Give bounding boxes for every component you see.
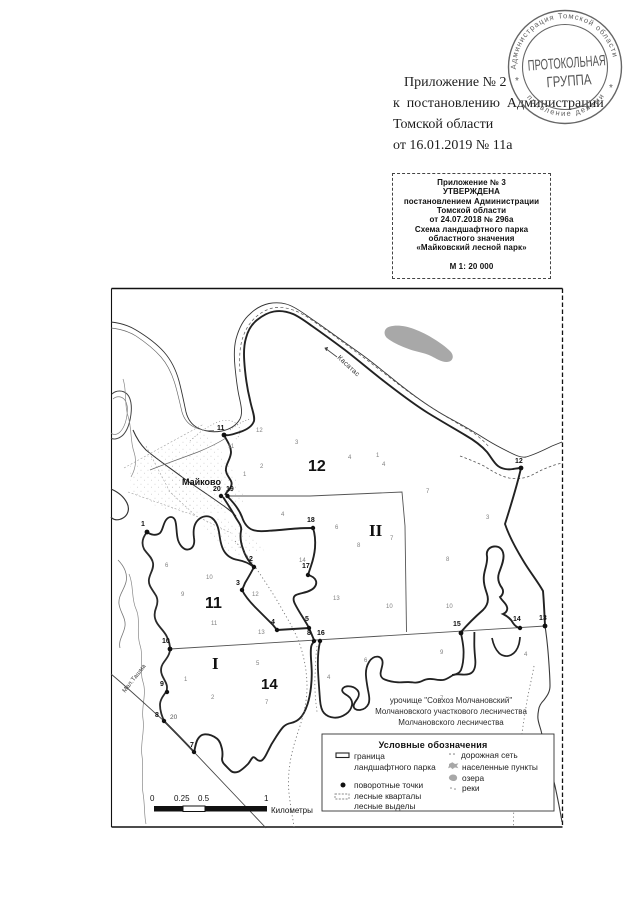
svg-text:граница: граница	[354, 751, 385, 761]
svg-text:14: 14	[261, 676, 278, 693]
svg-text:4: 4	[382, 462, 386, 468]
svg-text:1: 1	[376, 453, 380, 459]
svg-text:4: 4	[281, 512, 285, 518]
svg-text:4: 4	[524, 652, 528, 658]
svg-text:ландшафтного парка: ландшафтного парка	[354, 762, 436, 772]
svg-text:*: *	[609, 83, 613, 94]
svg-text:дорожная сеть: дорожная сеть	[461, 750, 518, 760]
svg-text:11: 11	[205, 595, 222, 612]
svg-text:*: *	[515, 76, 519, 87]
svg-text:5: 5	[305, 616, 309, 623]
svg-text:12: 12	[308, 458, 326, 475]
svg-text:19: 19	[226, 486, 234, 493]
svg-text:15: 15	[453, 621, 461, 628]
svg-text:1: 1	[184, 677, 188, 683]
svg-text:13: 13	[258, 630, 265, 636]
svg-text:11: 11	[211, 621, 218, 627]
svg-text:10: 10	[162, 638, 170, 645]
svg-text:Молчановского лесничества: Молчановского лесничества	[398, 718, 504, 727]
svg-text:1: 1	[264, 794, 269, 803]
svg-text:11: 11	[228, 444, 235, 450]
svg-text:8: 8	[155, 712, 159, 719]
svg-text:20: 20	[170, 714, 178, 721]
svg-text:14: 14	[299, 558, 306, 564]
svg-text:17: 17	[302, 563, 310, 570]
svg-text:реки: реки	[462, 783, 480, 793]
svg-text:1: 1	[243, 472, 247, 478]
svg-text:населенные пункты: населенные пункты	[462, 762, 538, 772]
svg-text:11: 11	[217, 425, 225, 432]
svg-text:ПРОТОКОЛЬНАЯ: ПРОТОКОЛЬНАЯ	[527, 52, 606, 74]
svg-text:0.25: 0.25	[174, 794, 190, 803]
svg-text:3: 3	[236, 580, 240, 587]
svg-text:4: 4	[348, 455, 352, 461]
svg-text:18: 18	[307, 517, 315, 524]
svg-text:9: 9	[160, 681, 164, 688]
svg-text:8: 8	[446, 557, 450, 563]
svg-text:9: 9	[440, 650, 444, 656]
svg-text:0: 0	[150, 794, 155, 803]
svg-text:6: 6	[335, 525, 339, 531]
svg-text:3: 3	[295, 440, 299, 446]
svg-text:10: 10	[206, 575, 213, 581]
svg-text:5: 5	[256, 661, 260, 667]
svg-text:ГРУППА: ГРУППА	[546, 71, 592, 91]
svg-text:9: 9	[181, 592, 185, 598]
svg-text:7: 7	[390, 536, 394, 542]
svg-text:12: 12	[252, 592, 259, 598]
svg-text:3: 3	[486, 515, 490, 521]
svg-text:10: 10	[446, 604, 453, 610]
svg-text:13: 13	[539, 615, 547, 622]
svg-text:7: 7	[426, 489, 430, 495]
svg-text:1: 1	[141, 521, 145, 528]
svg-text:4: 4	[271, 619, 275, 626]
svg-text:лесные выделы: лесные выделы	[354, 801, 415, 811]
svg-text:13: 13	[333, 596, 340, 602]
svg-text:озера: озера	[462, 773, 484, 783]
svg-text:I: I	[212, 654, 219, 673]
svg-text:2: 2	[249, 556, 253, 563]
svg-text:10: 10	[386, 604, 393, 610]
svg-text:14: 14	[513, 616, 521, 623]
svg-text:урочище "Совхоз Молчановский": урочище "Совхоз Молчановский"	[390, 696, 513, 705]
svg-text:Молчановского участкового лесн: Молчановского участкового лесничества	[375, 707, 527, 716]
svg-text:0.5: 0.5	[198, 794, 210, 803]
svg-text:лесные кварталы: лесные кварталы	[354, 791, 421, 801]
svg-text:12: 12	[256, 428, 263, 434]
svg-text:7: 7	[265, 700, 269, 706]
svg-text:II: II	[369, 521, 383, 540]
svg-text:12: 12	[515, 458, 523, 465]
svg-text:поворотные точки: поворотные точки	[354, 780, 423, 790]
svg-text:правление делами: правление делами	[525, 91, 607, 118]
svg-text:2: 2	[260, 464, 264, 470]
svg-text:6: 6	[165, 563, 169, 569]
svg-text:20: 20	[213, 486, 221, 493]
svg-text:7: 7	[190, 742, 194, 749]
svg-text:8: 8	[307, 630, 311, 637]
svg-text:Километры: Километры	[271, 806, 313, 815]
svg-text:8: 8	[357, 543, 361, 549]
svg-text:4: 4	[327, 675, 331, 681]
svg-text:2: 2	[211, 695, 215, 701]
svg-text:Условные обозначения: Условные обозначения	[379, 740, 488, 750]
svg-text:16: 16	[317, 630, 325, 637]
svg-text:Касатас: Касатас	[336, 354, 361, 378]
